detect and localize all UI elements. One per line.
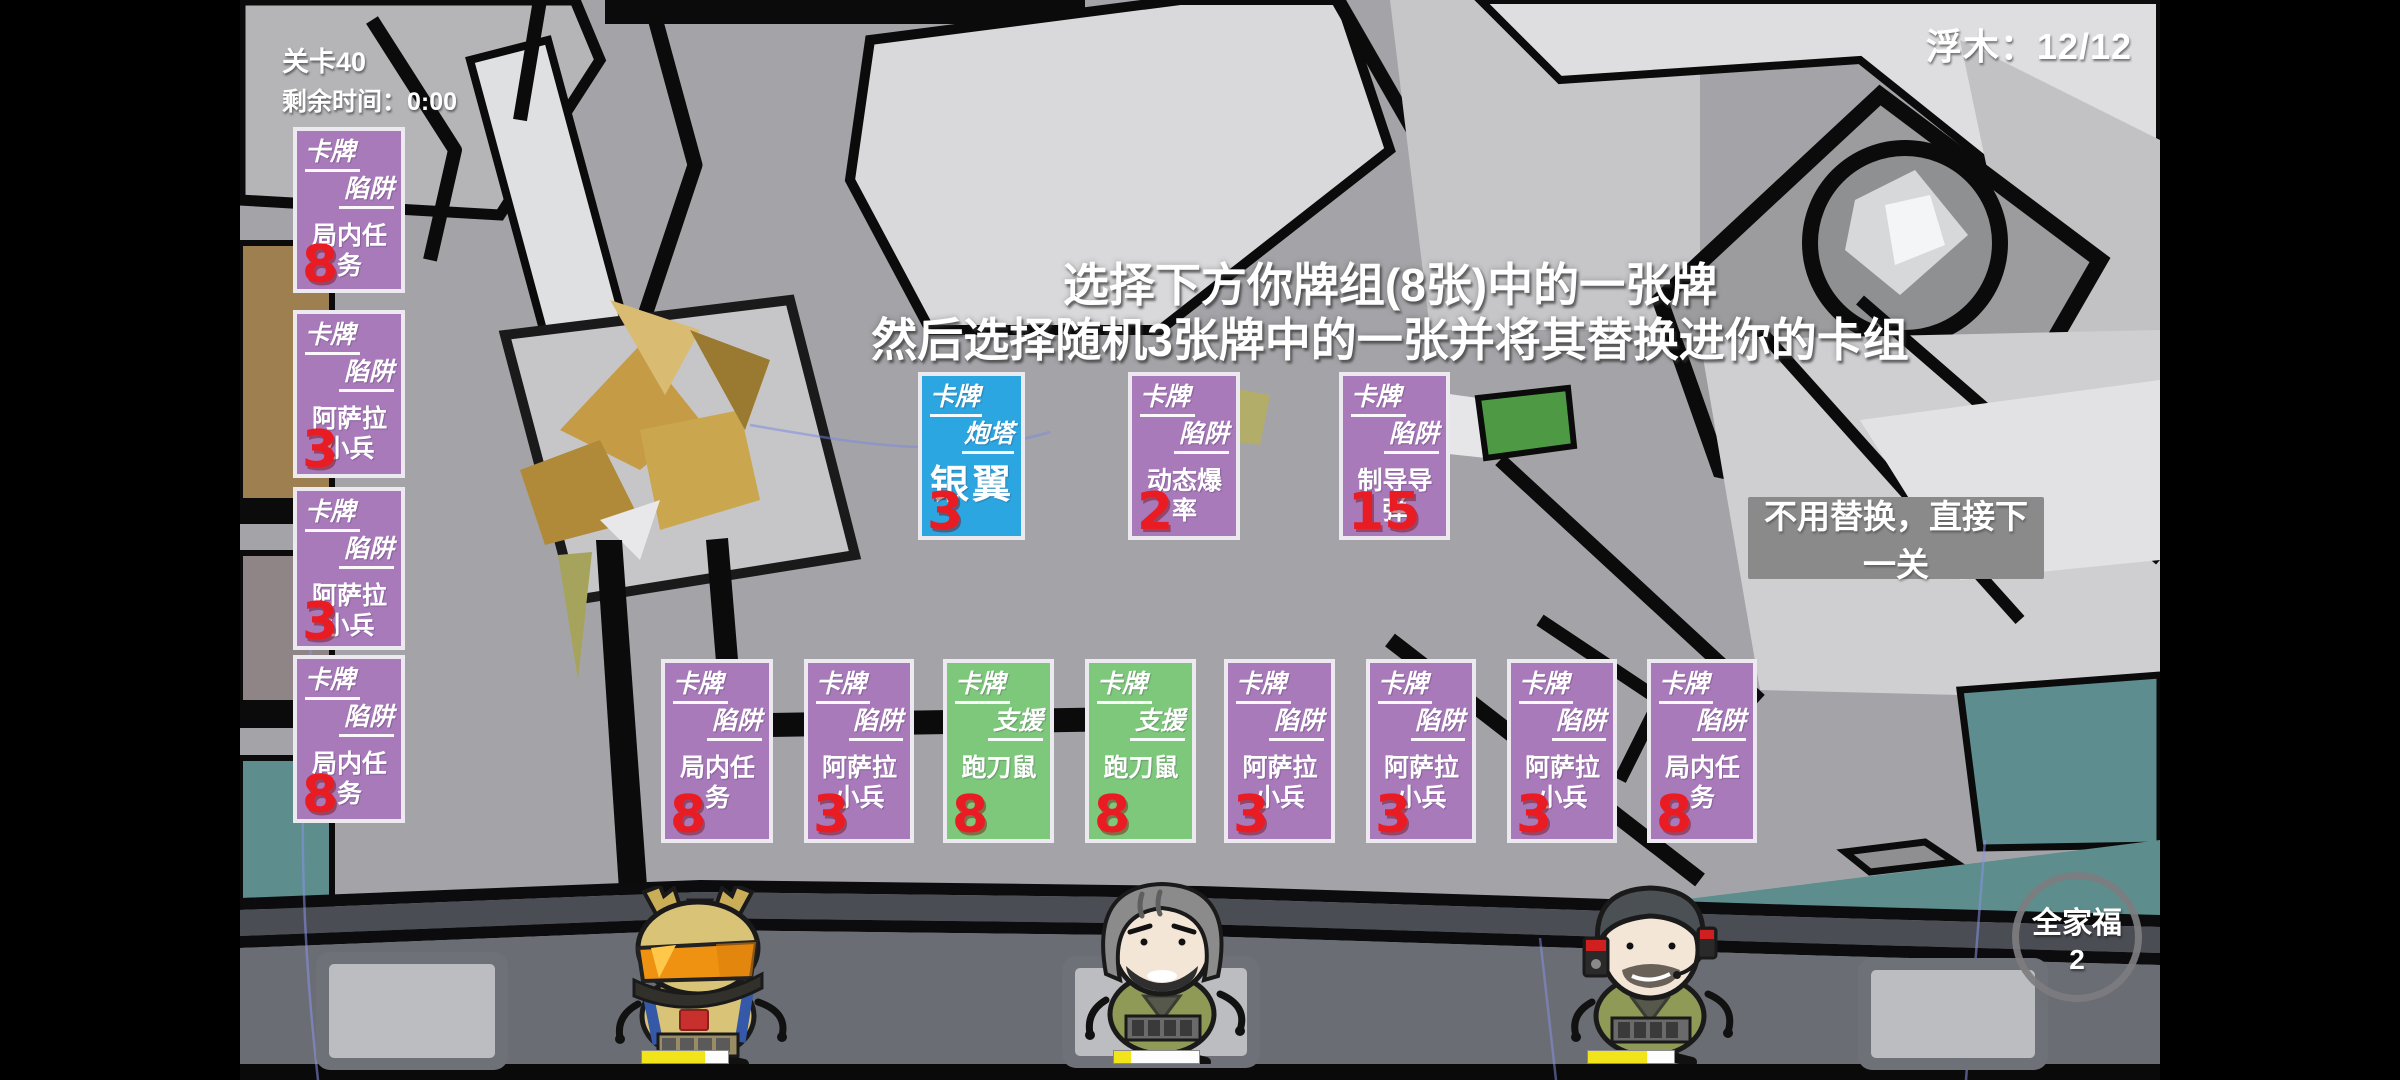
card-cost: 8 (302, 769, 338, 821)
card-cost: 8 (1094, 789, 1130, 841)
card-type-primary: 卡牌 (930, 382, 1014, 417)
card-cost: 8 (670, 789, 706, 841)
tan-helmet-soldier-character (596, 886, 800, 1064)
card-cost: 3 (1375, 789, 1411, 841)
card-type-secondary: 炮塔 (930, 419, 1014, 454)
group-photo-label: 全家福 (2032, 898, 2122, 942)
card-type-primary: 卡牌 (305, 497, 394, 532)
card-choices-1[interactable]: 卡牌炮塔银翼3 (918, 372, 1025, 540)
card-type-primary: 卡牌 (1140, 382, 1229, 417)
card-type-primary: 卡牌 (673, 669, 762, 704)
card-type-primary: 卡牌 (1519, 669, 1606, 704)
street-platform (1858, 958, 2048, 1070)
card-type-secondary: 陷阱 (1351, 419, 1439, 454)
card-type-primary: 卡牌 (1351, 382, 1439, 417)
remaining-time-label: 剩余时间：0:00 (282, 82, 457, 118)
card-deck-4[interactable]: 卡牌支援跑刀鼠8 (1085, 659, 1196, 843)
instruction-line-1: 选择下方你牌组(8张)中的一张牌 (590, 258, 2190, 313)
card-name: 跑刀鼠 (955, 753, 1043, 783)
card-cost: 3 (302, 424, 338, 476)
group-photo-badge[interactable]: 全家福 2 (2012, 872, 2142, 1002)
card-type-secondary: 支援 (955, 706, 1043, 741)
card-type-primary: 卡牌 (955, 669, 1043, 704)
card-type-primary: 卡牌 (1236, 669, 1324, 704)
card-cost: 15 (1348, 486, 1420, 538)
card-left_column-3[interactable]: 卡牌陷阱阿萨拉小兵3 (293, 487, 405, 650)
card-type-secondary: 陷阱 (673, 706, 762, 741)
card-cost: 3 (813, 789, 849, 841)
instruction-text: 选择下方你牌组(8张)中的一张牌 然后选择随机3张牌中的一张并将其替换进你的卡组 (590, 258, 2190, 368)
instruction-line-2: 然后选择随机3张牌中的一张并将其替换进你的卡组 (590, 313, 2190, 368)
card-type-primary: 卡牌 (305, 320, 394, 355)
card-cost: 2 (1137, 486, 1173, 538)
card-cost: 3 (302, 596, 338, 648)
card-cost: 8 (302, 239, 338, 291)
card-cost: 3 (1233, 789, 1269, 841)
skip-replace-button[interactable]: 不用替换，直接下一关 (1748, 497, 2044, 579)
card-name: 跑刀鼠 (1097, 753, 1185, 783)
card-type-secondary: 陷阱 (816, 706, 903, 741)
card-type-secondary: 陷阱 (305, 534, 394, 569)
helmet-headset-soldier-character (1540, 880, 1758, 1064)
card-cost: 3 (927, 486, 963, 538)
card-type-secondary: 支援 (1097, 706, 1185, 741)
card-type-secondary: 陷阱 (305, 174, 394, 209)
card-type-secondary: 陷阱 (1519, 706, 1606, 741)
card-type-primary: 卡牌 (1097, 669, 1185, 704)
card-choices-2[interactable]: 卡牌陷阱动态爆率2 (1128, 372, 1240, 540)
card-type-primary: 卡牌 (1378, 669, 1465, 704)
card-type-primary: 卡牌 (305, 665, 394, 700)
card-deck-7[interactable]: 卡牌陷阱阿萨拉小兵3 (1507, 659, 1617, 843)
card-type-secondary: 陷阱 (305, 702, 394, 737)
card-type-secondary: 陷阱 (1236, 706, 1324, 741)
gray-hair-beard-soldier-character (1056, 880, 1268, 1064)
driftwood-counter: 浮木：12/12 (1926, 18, 2132, 70)
letterbox-right (2160, 0, 2400, 1080)
card-left_column-1[interactable]: 卡牌陷阱局内任务8 (293, 127, 405, 293)
level-label: 关卡40 (282, 40, 366, 79)
card-deck-8[interactable]: 卡牌陷阱局内任务8 (1647, 659, 1757, 843)
card-type-secondary: 陷阱 (1659, 706, 1746, 741)
card-left_column-2[interactable]: 卡牌陷阱阿萨拉小兵3 (293, 310, 405, 478)
street-platform (316, 952, 508, 1070)
card-left_column-4[interactable]: 卡牌陷阱局内任务8 (293, 655, 405, 823)
card-type-secondary: 陷阱 (305, 357, 394, 392)
card-choices-3[interactable]: 卡牌陷阱制导导弹15 (1339, 372, 1450, 540)
card-deck-6[interactable]: 卡牌陷阱阿萨拉小兵3 (1366, 659, 1476, 843)
card-type-primary: 卡牌 (1659, 669, 1746, 704)
card-type-primary: 卡牌 (305, 137, 394, 172)
card-type-secondary: 陷阱 (1140, 419, 1229, 454)
game-screen: 关卡40 剩余时间：0:00 浮木：12/12 选择下方你牌组(8张)中的一张牌… (0, 0, 2400, 1080)
hp-bar (641, 1050, 729, 1064)
card-cost: 3 (1516, 789, 1552, 841)
hp-bar (1587, 1050, 1675, 1064)
card-deck-2[interactable]: 卡牌陷阱阿萨拉小兵3 (804, 659, 914, 843)
card-deck-1[interactable]: 卡牌陷阱局内任务8 (661, 659, 773, 843)
card-type-primary: 卡牌 (816, 669, 903, 704)
letterbox-left (0, 0, 240, 1080)
hp-bar (1113, 1050, 1200, 1064)
card-cost: 8 (1656, 789, 1692, 841)
card-deck-3[interactable]: 卡牌支援跑刀鼠8 (943, 659, 1054, 843)
card-cost: 8 (952, 789, 988, 841)
group-photo-count: 2 (2069, 944, 2085, 976)
card-deck-5[interactable]: 卡牌陷阱阿萨拉小兵3 (1224, 659, 1335, 843)
card-type-secondary: 陷阱 (1378, 706, 1465, 741)
